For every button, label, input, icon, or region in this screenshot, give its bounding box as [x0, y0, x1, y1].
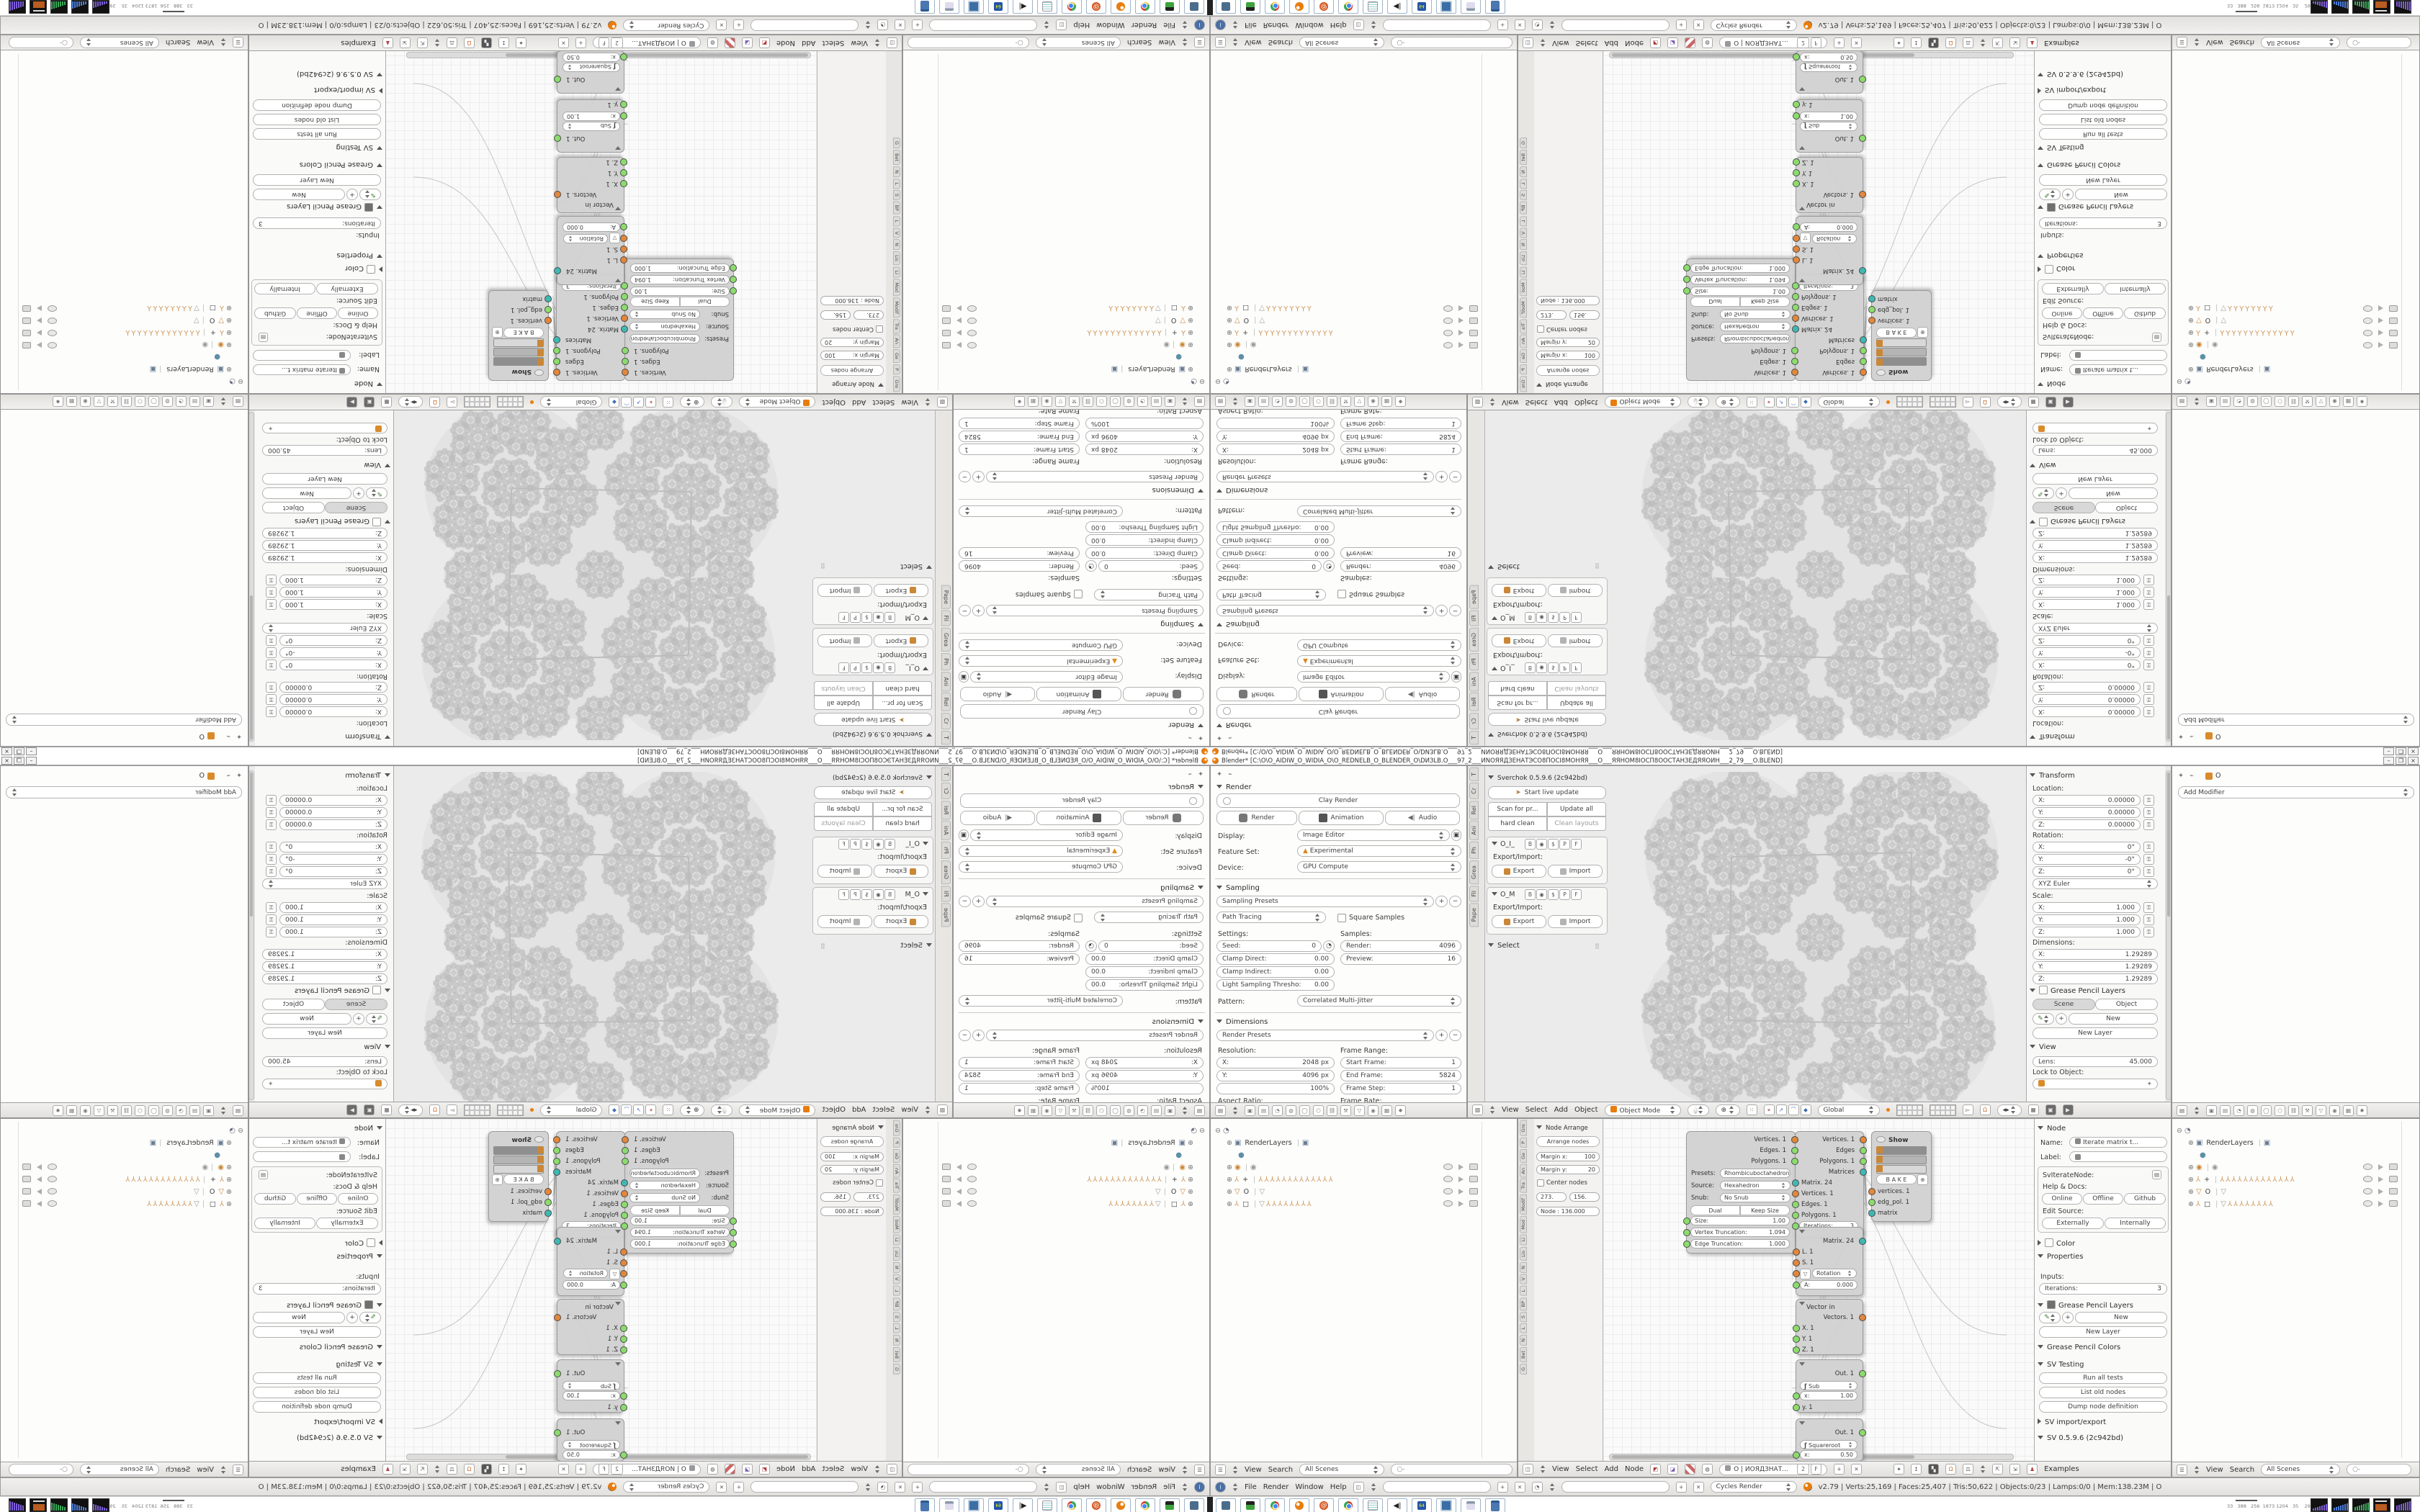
- eye-toggle[interactable]: ◉: [873, 889, 884, 900]
- eye-toggle[interactable]: [1443, 1200, 1453, 1207]
- tab-physics-icon[interactable]: ✸: [1395, 397, 1406, 408]
- eye-toggle[interactable]: [967, 1176, 977, 1182]
- menu-view[interactable]: View: [1502, 1106, 1519, 1114]
- taskbar-icon-chrome[interactable]: [1265, 1498, 1285, 1512]
- value-field[interactable]: X:0°: [279, 660, 387, 670]
- rotate-manipulator-icon[interactable]: ↗: [1776, 1104, 1787, 1115]
- render-border-icon[interactable]: ▻: [1963, 397, 1973, 408]
- node-value-field[interactable]: x:1.00: [563, 1391, 620, 1400]
- add-modifier-select[interactable]: Add Modifier: [2178, 786, 2414, 798]
- node-tab-n-9[interactable]: N: [893, 240, 900, 251]
- panel-properties[interactable]: Properties: [2038, 251, 2084, 259]
- taskbar-icon-chrome2[interactable]: [1338, 0, 1358, 14]
- rotate-arc-icon[interactable]: ⌒: [621, 397, 632, 408]
- pencil-select[interactable]: ✎: [2039, 1312, 2061, 1323]
- toolshelf-tab-fil[interactable]: Fil: [1469, 611, 1479, 626]
- menu-add[interactable]: Add: [802, 39, 815, 47]
- menu-render[interactable]: Render: [1263, 1483, 1289, 1491]
- node-tab-n-9[interactable]: N: [1520, 1262, 1527, 1273]
- node-tab-li-7[interactable]: Li: [893, 266, 900, 277]
- input-socket[interactable]: [621, 282, 628, 289]
- gp-object-button[interactable]: Object: [262, 502, 325, 513]
- info-editor-icon[interactable]: i: [1194, 20, 1205, 31]
- output-socket[interactable]: [1859, 191, 1866, 198]
- editor-type-icon[interactable]: ☰: [233, 1464, 243, 1475]
- taskbar-icon-fraps[interactable]: 64: [988, 0, 1008, 14]
- toolshelf-tab-ani[interactable]: Ani: [941, 672, 951, 691]
- tab-data-icon[interactable]: ⚒: [2302, 397, 2313, 408]
- selectable-toggle[interactable]: [37, 318, 42, 324]
- gp-new-button[interactable]: New: [2069, 1013, 2158, 1025]
- tab-data-icon[interactable]: ⚒: [1069, 397, 1080, 408]
- selectable-toggle[interactable]: [956, 330, 962, 336]
- menu-help[interactable]: Help: [1330, 22, 1347, 30]
- input-socket[interactable]: [1793, 1346, 1800, 1354]
- node-tab-v-10[interactable]: V: [1520, 228, 1527, 238]
- panel-sv-version[interactable]: SV 0.5.9.6 (2c942bd): [2038, 1434, 2123, 1442]
- node-tab-p-1[interactable]: P: [1520, 1138, 1527, 1148]
- dual-button[interactable]: Dual: [680, 297, 730, 307]
- tab-physics-icon[interactable]: ✸: [53, 1105, 63, 1116]
- taskbar-icon-chrome[interactable]: [1135, 0, 1155, 14]
- visibility-toggles[interactable]: [2363, 342, 2398, 348]
- render-samples-field[interactable]: Render:4096: [959, 560, 1080, 572]
- import-button[interactable]: Import: [1548, 915, 1603, 928]
- add-scene-button[interactable]: +: [1676, 1482, 1687, 1493]
- outliner-row[interactable]: ⊕▣RenderLayers|▣: [2188, 1137, 2272, 1149]
- tab-material-icon[interactable]: ▽: [1055, 397, 1066, 408]
- selectable-toggle[interactable]: [37, 306, 42, 312]
- layout-export-icon[interactable]: ⇱: [1992, 37, 2003, 48]
- output-socket[interactable]: [1859, 1238, 1866, 1245]
- output-socket[interactable]: [554, 1370, 561, 1377]
- snap-element-select[interactable]: ◂▸: [398, 1104, 423, 1116]
- tab-object-icon[interactable]: ◯: [2261, 1105, 2272, 1116]
- taskbar-icon-display[interactable]: [1216, 0, 1236, 14]
- expand-icon[interactable]: ⊕: [226, 328, 232, 336]
- eye-toggle[interactable]: [967, 342, 977, 348]
- node-tab-ge-2[interactable]: Ge: [1520, 1149, 1527, 1163]
- tab-render-icon[interactable]: ▣: [203, 397, 214, 408]
- audio-button[interactable]: ◀|Audio: [1385, 687, 1460, 701]
- menu-view[interactable]: View: [1502, 398, 1519, 406]
- menu-node[interactable]: Node: [776, 1465, 795, 1473]
- node-enum-field[interactable]: Rhombicuboctahedron: [629, 334, 700, 343]
- rotate-manipulator-icon[interactable]: ↗: [633, 397, 644, 408]
- editor-type-icon[interactable]: ☰: [1215, 1464, 1226, 1475]
- tab-render-layers-icon[interactable]: ▤: [1258, 1105, 1269, 1116]
- outliner-row[interactable]: ⊕◉|◉: [200, 1161, 232, 1174]
- translate-manipulator-icon[interactable]: ⌖: [1764, 1104, 1775, 1115]
- lock-toggle[interactable]: ⚿: [266, 819, 277, 830]
- layout-import-icon[interactable]: ⇲: [2009, 1464, 2020, 1475]
- tab-render-layers-icon[interactable]: ▤: [2220, 397, 2231, 408]
- outliner-row[interactable]: ⊕◉|◉: [200, 338, 232, 351]
- value-field[interactable]: X:1.29289: [2033, 552, 2158, 563]
- tab-world-icon[interactable]: ◍: [1124, 397, 1134, 408]
- lock-toggle[interactable]: ⚿: [2143, 647, 2154, 658]
- input-socket[interactable]: [1683, 1218, 1690, 1225]
- expand-icon[interactable]: ⊕: [226, 1139, 232, 1147]
- node-name-field[interactable]: Iterate matrix t...: [253, 1137, 351, 1148]
- arrange-y-field[interactable]: 156.: [1569, 1192, 1600, 1202]
- snap-magnet-icon[interactable]: Ω: [429, 1104, 440, 1115]
- fake-user-toggle[interactable]: F: [838, 889, 849, 900]
- add-preset-button[interactable]: +: [972, 605, 985, 616]
- value-field[interactable]: X:0°: [279, 842, 387, 852]
- new-layer-button[interactable]: New Layer: [2033, 1027, 2158, 1039]
- menu-render[interactable]: Render: [1131, 1483, 1157, 1491]
- export-button[interactable]: Export: [874, 915, 928, 928]
- node-tab-v-10[interactable]: V: [893, 228, 900, 238]
- render-toggle[interactable]: [2389, 1188, 2398, 1194]
- expand-icon[interactable]: ⊕: [1188, 341, 1193, 348]
- node-6[interactable]: Out. 1ƒ Squarerootx:0.50: [1796, 50, 1863, 94]
- bake-toggle[interactable]: B: [1525, 889, 1536, 900]
- editor-type-icon[interactable]: ▤: [1215, 1105, 1226, 1116]
- square-samples-checkbox[interactable]: [1337, 914, 1346, 922]
- value-field[interactable]: X:1.000: [2033, 902, 2141, 913]
- panel-sv-testing[interactable]: SV Testing: [336, 1361, 382, 1369]
- expand-icon[interactable]: ⊕: [1227, 365, 1232, 373]
- value-field[interactable]: Lens:45.000: [2033, 1056, 2158, 1067]
- node-tab-s-13[interactable]: S: [893, 1312, 900, 1322]
- node-value-field[interactable]: Edge Truncation:1.000: [630, 1239, 730, 1248]
- input-socket[interactable]: [1793, 1282, 1800, 1289]
- editor-type-icon[interactable]: ◫: [887, 37, 897, 48]
- pin-icon[interactable]: ✦: [236, 732, 242, 740]
- lock-icon[interactable]: ▣: [959, 829, 969, 841]
- taskbar-icon-fraps[interactable]: 64: [1412, 1498, 1432, 1512]
- output-socket[interactable]: [1860, 336, 1867, 343]
- gp-new-button[interactable]: New: [253, 189, 345, 200]
- add-icon[interactable]: +: [2062, 1312, 2074, 1323]
- taskbar-icon-chrome2[interactable]: [1062, 1498, 1082, 1512]
- tab-render-layers-icon[interactable]: ▤: [1151, 1105, 1162, 1116]
- panel-sv-import-export[interactable]: SV import/export: [314, 1418, 382, 1426]
- scale-manipulator-icon[interactable]: ◆: [1801, 1104, 1811, 1115]
- add-preset-button[interactable]: +: [1435, 896, 1448, 907]
- menu-add[interactable]: Add: [1554, 1106, 1568, 1114]
- menu-view[interactable]: View: [1552, 39, 1569, 47]
- node-label-field[interactable]: [253, 350, 351, 361]
- value-field[interactable]: Z:0°: [2033, 866, 2141, 877]
- arrange-y-field[interactable]: 156.: [1569, 310, 1600, 320]
- menu-object[interactable]: Object: [822, 1106, 846, 1114]
- lock-toggle[interactable]: ⚿: [2143, 807, 2154, 818]
- outliner-row[interactable]: ●: [1174, 1149, 1182, 1161]
- fake-user-toggle[interactable]: F: [1571, 839, 1582, 850]
- input-socket[interactable]: [544, 1188, 552, 1195]
- menu-view[interactable]: View: [901, 1106, 918, 1114]
- panel-node[interactable]: Node: [354, 379, 382, 387]
- add-preset-button[interactable]: +: [972, 896, 985, 907]
- output-socket[interactable]: [1860, 347, 1867, 354]
- bake-button[interactable]: B A K E: [503, 1174, 544, 1184]
- node-tab-n-15[interactable]: N: [893, 1335, 900, 1346]
- tab-constraints-icon[interactable]: ⬡: [135, 1105, 145, 1116]
- node-tab-l-11[interactable]: L: [893, 216, 900, 226]
- outliner-search-input[interactable]: ○-: [2347, 1464, 2411, 1475]
- value-field[interactable]: Z:1.29289: [2033, 528, 2158, 539]
- display-mode-select[interactable]: All Scenes: [1036, 1464, 1121, 1475]
- taskbar-icon-chrome[interactable]: [1265, 0, 1285, 14]
- node-enum-field[interactable]: Hexahedron: [629, 322, 700, 331]
- menu-search[interactable]: Search: [166, 39, 190, 47]
- add-icon[interactable]: +: [353, 487, 364, 499]
- anim-toggle[interactable]: $: [1548, 889, 1559, 900]
- node-2[interactable]: ShowB A K E⊕vertices. 1edg_pol. 1matrix: [488, 290, 549, 381]
- expand-icon[interactable]: ⊕: [226, 1188, 232, 1196]
- menu-select[interactable]: Select: [822, 39, 844, 47]
- value-field[interactable]: X:0°: [2033, 660, 2141, 670]
- output-socket[interactable]: [1791, 1136, 1798, 1143]
- tab-data-icon[interactable]: ⚒: [1340, 397, 1351, 408]
- outliner-row[interactable]: ⊖◔: [1215, 1125, 1231, 1137]
- node-2[interactable]: ShowB A K E⊕vertices. 1edg_pol. 1matrix: [1871, 290, 1932, 381]
- display-mode-select[interactable]: All Scenes: [1299, 37, 1384, 48]
- display-select[interactable]: Image Editor: [1297, 671, 1450, 683]
- toolshelf-tab-ph[interactable]: Ph: [1469, 842, 1479, 859]
- close-button[interactable]: ×: [2408, 747, 2419, 755]
- toolshelf-tab-ani[interactable]: Ani: [1469, 821, 1479, 840]
- tab-texture-icon[interactable]: ◉: [1368, 397, 1379, 408]
- render-samples-field[interactable]: Render:4096: [959, 940, 1080, 952]
- math-function-select[interactable]: ƒ Sub: [1800, 1381, 1857, 1390]
- panel-color[interactable]: Color: [2038, 1238, 2075, 1248]
- preview-samples-field[interactable]: Preview:16: [1340, 547, 1461, 559]
- output-socket[interactable]: [622, 1136, 629, 1143]
- node-name-field[interactable]: Iterate matrix t...: [2069, 1137, 2167, 1148]
- toolshelf-tab-cr[interactable]: Cr: [941, 713, 951, 729]
- add-layout-button[interactable]: +: [1497, 1482, 1508, 1493]
- input-socket[interactable]: [1792, 1179, 1799, 1187]
- tab-modifiers-icon[interactable]: ⛓: [1083, 1105, 1093, 1116]
- taskbar-icon-disk[interactable]: [1160, 1498, 1180, 1512]
- list-old-nodes-button[interactable]: List old nodes: [2039, 1387, 2167, 1398]
- input-socket[interactable]: [1868, 1210, 1875, 1217]
- offline-button[interactable]: Offline: [297, 1193, 337, 1205]
- outliner-search-input[interactable]: ○-: [2347, 37, 2411, 48]
- taskbar-icon-explorer[interactable]: [1485, 1498, 1505, 1512]
- node-collapse-icon[interactable]: [1799, 146, 1805, 150]
- fake-user-button[interactable]: F: [1811, 1464, 1821, 1475]
- input-socket[interactable]: [1793, 1248, 1800, 1256]
- taskbar-icon-viewer[interactable]: [964, 0, 984, 14]
- node-tab-s-13[interactable]: S: [1520, 1312, 1527, 1322]
- feature-set-select[interactable]: ▲ Experimental: [1297, 655, 1461, 667]
- visibility-toggles[interactable]: [1443, 318, 1478, 324]
- node-collapse-icon[interactable]: [615, 207, 621, 210]
- selectable-toggle[interactable]: [37, 1189, 42, 1194]
- outliner-row[interactable]: ⊕⅄+|⅄⅄⅄⅄⅄⅄⅄⅄⅄⅄⅄⅄⅄: [1085, 1174, 1193, 1186]
- taskbar-icon-opera[interactable]: @: [1314, 1498, 1334, 1512]
- iterations-field[interactable]: Iterations:3: [253, 217, 381, 229]
- input-socket[interactable]: [620, 1248, 627, 1256]
- node-6[interactable]: Out. 1ƒ Squarerootx:0.50: [557, 1418, 624, 1462]
- pin-icon[interactable]: ✦: [1216, 734, 1222, 742]
- panel-transform[interactable]: Transform: [2030, 772, 2075, 780]
- editor-type-icon[interactable]: ◫: [1523, 1464, 1533, 1475]
- value-field[interactable]: X:1.29289: [262, 552, 387, 563]
- input-socket[interactable]: [1793, 112, 1800, 120]
- new-layer-button[interactable]: New Layer: [262, 473, 387, 485]
- taskbar-icon-disk[interactable]: [1240, 1498, 1260, 1512]
- pattern-select[interactable]: Correlated Multi-Jitter: [1297, 995, 1461, 1007]
- editor-type-icon[interactable]: ▤: [2177, 1105, 2187, 1116]
- lock-toggle[interactable]: ⚿: [2143, 694, 2154, 705]
- visibility-toggles[interactable]: [2363, 318, 2398, 324]
- value-field[interactable]: Y:-0°: [279, 854, 387, 865]
- taskbar-icon-blender[interactable]: [1111, 1498, 1131, 1512]
- menu-render[interactable]: Render: [1263, 22, 1289, 30]
- tab-scene-icon[interactable]: ◔: [1137, 397, 1148, 408]
- selectable-toggle[interactable]: [1458, 1189, 1464, 1194]
- render-toggle[interactable]: [22, 342, 31, 348]
- export-button[interactable]: Export: [874, 634, 928, 647]
- color-swatch[interactable]: [493, 1156, 544, 1164]
- outliner-row[interactable]: ⊕⅄□|▽⅄⅄⅄⅄⅄⅄⅄⅄: [145, 1198, 232, 1210]
- clamp-direct-field[interactable]: Clamp Direct:0.00: [1085, 547, 1204, 559]
- import-button[interactable]: Import: [817, 584, 872, 597]
- keep-size-button[interactable]: Keep Size: [1740, 1205, 1790, 1215]
- editor-type-icon[interactable]: ☰: [1194, 37, 1205, 48]
- render-presets-select[interactable]: Render Presets: [986, 1030, 1204, 1041]
- resolution-percent-field[interactable]: 100%: [1085, 1083, 1204, 1094]
- bake-settings-icon[interactable]: ⊕: [492, 327, 503, 338]
- tab-modifiers-icon[interactable]: ⛓: [1327, 1105, 1337, 1116]
- tab-world-icon[interactable]: ◍: [162, 397, 173, 408]
- pencil-select[interactable]: ✎: [366, 487, 387, 499]
- node-value-field[interactable]: Size:1.00: [1690, 287, 1790, 296]
- eye-toggle[interactable]: [967, 305, 977, 312]
- pivot-select[interactable]: ⊕: [680, 1104, 704, 1116]
- examples-icon[interactable]: ♟: [2027, 1464, 2038, 1475]
- audio-button[interactable]: ◀|Audio: [960, 687, 1035, 701]
- outliner-row[interactable]: ⊕▽O|▽: [2188, 314, 2228, 326]
- outliner-row[interactable]: ⊕⅄□|▽⅄⅄⅄⅄⅄⅄⅄⅄: [1107, 1198, 1193, 1210]
- delete-layout-button[interactable]: ✕: [1515, 20, 1525, 31]
- tree-type-icon[interactable]: ◩: [1650, 1464, 1661, 1475]
- scale-icon[interactable]: ⚖: [447, 37, 457, 48]
- user-count-badge[interactable]: 2: [611, 1464, 623, 1475]
- input-socket[interactable]: [1792, 1223, 1799, 1230]
- update-all-button[interactable]: Update all: [814, 802, 873, 816]
- output-socket[interactable]: [553, 336, 560, 343]
- render-presets-select[interactable]: Render Presets: [1216, 471, 1434, 482]
- bake-toggle[interactable]: B: [884, 612, 895, 623]
- display-select[interactable]: Image Editor: [1297, 829, 1450, 841]
- tab-render-icon[interactable]: ▣: [2206, 397, 2217, 408]
- panel-grease-pencil-layers[interactable]: Grease Pencil Layers: [295, 517, 390, 526]
- outliner-row[interactable]: ⊕⅄+|⅄⅄⅄⅄⅄⅄⅄⅄⅄⅄⅄⅄⅄: [1227, 326, 1335, 338]
- taskbar-icon-explorer[interactable]: [915, 1498, 935, 1512]
- input-socket[interactable]: [1793, 235, 1800, 242]
- taskbar-icon-speaker[interactable]: ◀|: [1013, 1498, 1033, 1512]
- toolshelf-tab-ani[interactable]: Ani: [1469, 672, 1479, 691]
- color-swatch[interactable]: [493, 348, 544, 356]
- input-socket[interactable]: [544, 1199, 552, 1206]
- node-canvas[interactable]: Vertices. 1Edges. 1Polygons. 1Presets:Rh…: [1603, 1119, 2034, 1462]
- gp-object-button[interactable]: Object: [2095, 999, 2158, 1010]
- panel-node-arrange[interactable]: Node Arrange: [832, 380, 884, 387]
- remove-preset-button[interactable]: −: [1449, 471, 1461, 482]
- seed-field[interactable]: Seed:0: [1098, 940, 1204, 952]
- node-tab-bet-16[interactable]: Bet: [893, 1347, 900, 1362]
- input-socket[interactable]: [544, 306, 552, 313]
- pencil-select[interactable]: ✎: [366, 1013, 387, 1025]
- orientation-select[interactable]: Global: [540, 1104, 602, 1116]
- outliner-search-input[interactable]: ○-: [907, 1464, 1029, 1475]
- online-button[interactable]: Online: [2042, 1193, 2082, 1205]
- input-socket[interactable]: [620, 53, 627, 60]
- light-sampling-field[interactable]: Light Sampling Thresho:0.00: [1085, 979, 1204, 991]
- render-toggle[interactable]: [1469, 1200, 1478, 1207]
- pin-icon[interactable]: ✦: [1894, 1464, 1904, 1475]
- node-tab-bet-16[interactable]: Bet: [1520, 150, 1527, 165]
- github-button[interactable]: Github: [2124, 307, 2166, 319]
- bake-toggle[interactable]: B: [884, 662, 895, 673]
- editor-type-icon[interactable]: ▤: [233, 397, 243, 408]
- panel-node[interactable]: Node: [2038, 379, 2066, 387]
- manipulator-toggle[interactable]: ⁙: [1747, 397, 1757, 408]
- node-4[interactable]: Vector inVectors. 1X. 1Y. 1Z. 1: [1796, 1299, 1863, 1355]
- tab-scene-icon[interactable]: ◔: [1137, 1105, 1148, 1116]
- color-swatch[interactable]: [1876, 1146, 1927, 1155]
- maximize-button[interactable]: ❐: [14, 747, 24, 755]
- audio-button[interactable]: ◀|Audio: [960, 811, 1035, 825]
- anim-toggle[interactable]: $: [861, 612, 872, 623]
- eye-toggle[interactable]: [1443, 330, 1453, 336]
- outliner-row[interactable]: ⊕⅄+|⅄⅄⅄⅄⅄⅄⅄⅄⅄⅄⅄⅄⅄: [2188, 326, 2296, 338]
- pivot-select[interactable]: ⊕: [1716, 397, 1740, 408]
- layers-grid-2[interactable]: [464, 1104, 490, 1116]
- menu-view[interactable]: View: [2206, 39, 2223, 47]
- render-toggle[interactable]: [22, 1176, 31, 1182]
- eye-toggle[interactable]: ◉: [873, 662, 884, 673]
- anim-toggle[interactable]: $: [861, 839, 872, 850]
- input-socket[interactable]: [1793, 180, 1800, 187]
- node-tab-l-11[interactable]: L: [1520, 1286, 1527, 1296]
- iterations-field[interactable]: Iterations:3: [2039, 217, 2167, 229]
- panel-dimensions[interactable]: Dimensions: [1152, 1018, 1204, 1026]
- selectable-toggle[interactable]: [1458, 343, 1464, 348]
- mode-icon[interactable]: ▽: [1800, 1269, 1811, 1279]
- input-socket[interactable]: [621, 293, 628, 300]
- color-checkbox[interactable]: [367, 1238, 375, 1247]
- examples-icon[interactable]: ♟: [382, 37, 393, 48]
- render-toggle[interactable]: [942, 342, 951, 348]
- square-samples-checkbox[interactable]: [1074, 590, 1083, 598]
- node-tab-bet-16[interactable]: Bet: [893, 150, 900, 165]
- export-button[interactable]: Export: [1492, 865, 1546, 878]
- visibility-toggles[interactable]: [1443, 1164, 1478, 1170]
- clamp-direct-field[interactable]: Clamp Direct:0.00: [1085, 953, 1204, 965]
- input-socket[interactable]: [1793, 1404, 1800, 1411]
- tab-physics-icon[interactable]: ✸: [1014, 1105, 1025, 1116]
- toolshelf-tab-ani[interactable]: Ani: [941, 821, 951, 840]
- tab-render-layers-icon[interactable]: ▤: [1151, 397, 1162, 408]
- sampling-presets-select[interactable]: Sampling Presets: [986, 605, 1204, 616]
- orientation-select[interactable]: Global: [1818, 397, 1880, 408]
- eye-toggle[interactable]: [1443, 1188, 1453, 1194]
- n-panel-scrollbar[interactable]: [2166, 770, 2172, 1100]
- tray-monitor-graph[interactable]: [9, 1498, 26, 1512]
- frame-step-field[interactable]: Frame Step:1: [959, 418, 1080, 429]
- tab-particles-icon[interactable]: ▦: [1381, 397, 1392, 408]
- update-all-button[interactable]: Update all: [1547, 802, 1606, 816]
- remove-preset-button[interactable]: −: [1449, 1030, 1461, 1041]
